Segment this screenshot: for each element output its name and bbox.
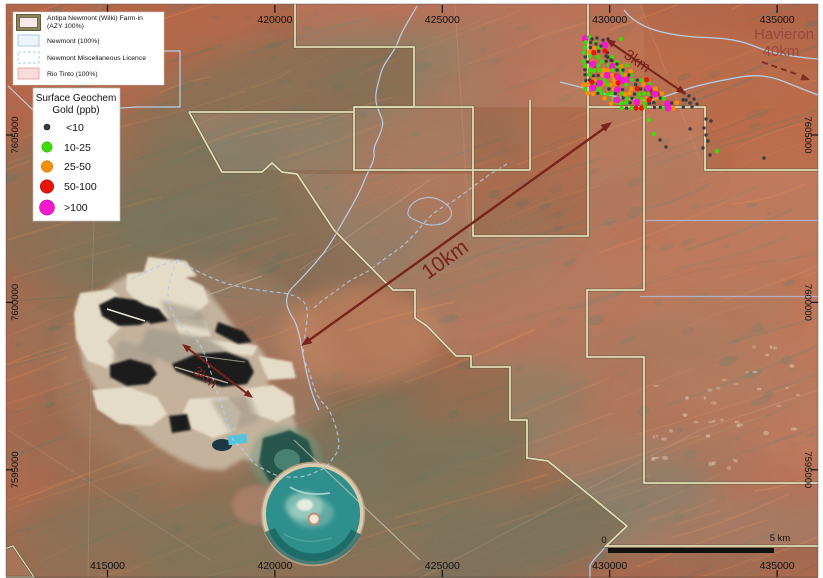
svg-text:7595000: 7595000 bbox=[10, 451, 21, 488]
svg-text:Havieron: Havieron bbox=[754, 26, 814, 43]
svg-text:420000: 420000 bbox=[257, 14, 292, 26]
svg-text:(AZY 100%): (AZY 100%) bbox=[47, 23, 84, 30]
svg-text:7605000: 7605000 bbox=[10, 117, 21, 154]
svg-text:430000: 430000 bbox=[592, 14, 627, 26]
svg-text:425000: 425000 bbox=[425, 14, 460, 26]
svg-text:40km: 40km bbox=[763, 43, 800, 60]
svg-text:Newmont Miscellaneous Licence: Newmont Miscellaneous Licence bbox=[47, 55, 146, 62]
svg-text:430000: 430000 bbox=[592, 560, 627, 572]
svg-text:7600000: 7600000 bbox=[802, 284, 813, 321]
svg-text:Antipa Newmont (Wilki) Farm-in: Antipa Newmont (Wilki) Farm-in bbox=[47, 15, 143, 22]
svg-text:7600000: 7600000 bbox=[10, 284, 21, 321]
svg-text:420000: 420000 bbox=[257, 560, 292, 572]
svg-text:Newmont (100%): Newmont (100%) bbox=[47, 38, 100, 45]
svg-text:435000: 435000 bbox=[760, 560, 795, 572]
svg-text:7605000: 7605000 bbox=[802, 117, 813, 154]
svg-text:5 km: 5 km bbox=[770, 533, 791, 544]
svg-text:<10: <10 bbox=[66, 122, 84, 134]
svg-text:Rio Tinto (100%): Rio Tinto (100%) bbox=[47, 71, 98, 78]
svg-text:Gold (ppb): Gold (ppb) bbox=[52, 105, 99, 116]
svg-text:>100: >100 bbox=[64, 202, 88, 214]
svg-text:0: 0 bbox=[601, 535, 606, 546]
svg-text:435000: 435000 bbox=[760, 14, 795, 26]
svg-text:50-100: 50-100 bbox=[64, 181, 97, 193]
svg-text:25-50: 25-50 bbox=[64, 161, 91, 173]
svg-text:10-25: 10-25 bbox=[64, 142, 91, 154]
svg-text:425000: 425000 bbox=[425, 560, 460, 572]
svg-text:7595000: 7595000 bbox=[802, 451, 813, 488]
svg-text:Surface Geochem: Surface Geochem bbox=[36, 93, 117, 104]
svg-text:415000: 415000 bbox=[90, 560, 125, 572]
